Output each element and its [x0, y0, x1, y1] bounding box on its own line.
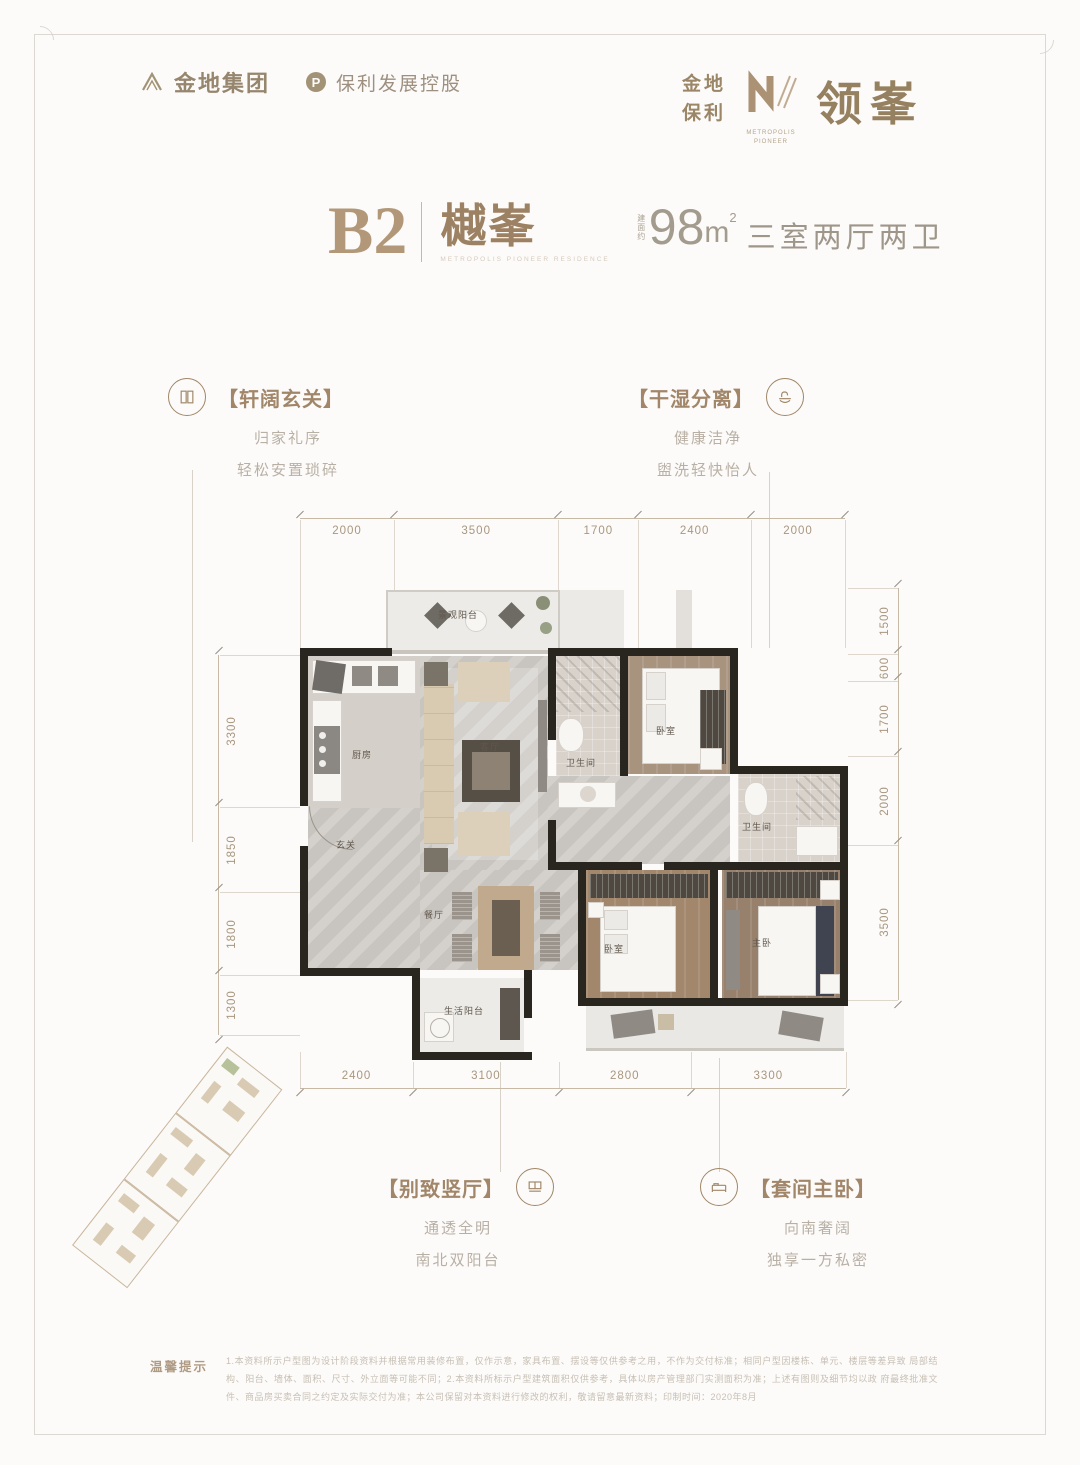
room-label-master: 主卧 — [752, 936, 772, 949]
room-label-bath1: 卫生间 — [566, 756, 596, 769]
dim-label: 2400 — [680, 525, 710, 537]
callout-master-line2: 独享一方私密 — [718, 1249, 918, 1270]
poly-logo-icon: P — [306, 72, 326, 92]
shower-area — [556, 656, 620, 712]
callout-hall-line1: 通透全明 — [378, 1217, 538, 1238]
wall — [300, 648, 308, 806]
storage-cabinet — [500, 988, 520, 1040]
washer-drum — [430, 1018, 450, 1038]
connector-entry — [192, 470, 193, 842]
room-label-dining: 餐厅 — [424, 908, 444, 921]
stove — [314, 726, 340, 774]
masthead-brand-stack: 金地 保利 — [682, 70, 726, 129]
nightstand — [820, 880, 840, 900]
range-hood — [312, 660, 346, 694]
callout-master-line1: 向南奢阔 — [718, 1217, 918, 1238]
wall — [710, 866, 718, 1006]
sofa — [424, 684, 454, 844]
callout-hall-line2: 南北双阳台 — [378, 1249, 538, 1270]
tv-console — [726, 910, 740, 990]
callout-master: 【套间主卧】 向南奢阔 独享一方私密 — [700, 1168, 950, 1270]
dim-label: 3500 — [461, 525, 491, 537]
dim-chain-top: 2000 3500 1700 2400 2000 — [300, 518, 845, 543]
callout-entry-title: 【轩阔玄关】 — [218, 383, 344, 412]
dim-label: 3500 — [879, 908, 891, 938]
window-sill — [392, 650, 556, 654]
dim-label: 1500 — [879, 606, 891, 636]
m-logo-word1: METROPOLIS — [740, 129, 802, 138]
burner — [319, 732, 326, 739]
callout-drywet-line1: 健康洁净 — [628, 427, 788, 448]
gemdale-logo-icon — [140, 70, 164, 94]
wall — [548, 862, 642, 870]
dim-label: 1850 — [226, 835, 238, 865]
flyer-page: 金地集团 P 保利发展控股 金地 保利 METROPOLIS PIONEER 领… — [0, 0, 1080, 1465]
lounge-chair — [458, 662, 510, 702]
m-logo-block: METROPOLIS PIONEER — [740, 66, 802, 147]
wardrobe — [590, 874, 708, 898]
wall — [664, 862, 848, 870]
masthead-baoli: 保利 — [682, 99, 726, 128]
wall — [730, 648, 738, 774]
room-label-bedroom-n: 卧室 — [656, 724, 676, 737]
room-label-bedroom-s: 卧室 — [604, 942, 624, 955]
dim-chain-right: 1500 600 1700 2000 3500 — [872, 588, 899, 1000]
wall — [556, 648, 738, 656]
basin — [580, 786, 596, 802]
dining-chair — [540, 892, 560, 920]
room-label-bath2: 卫生间 — [742, 820, 772, 833]
toilet — [558, 718, 584, 752]
disclaimer-line: 1.本资料所示户型图为设计阶段资料并根据常用装修布置，仅作示意，家具布置、摆设等… — [226, 1356, 906, 1366]
wall — [620, 648, 628, 776]
area-superscript: 2 — [729, 210, 736, 225]
unit-name: 樾峯 — [440, 204, 609, 250]
witness-line — [845, 520, 846, 648]
dim-label: 2000 — [783, 525, 813, 537]
burner — [319, 746, 326, 753]
dim-label: 2400 — [342, 1070, 372, 1082]
dim-label: 3300 — [754, 1070, 784, 1082]
dim-chain-left: 3300 1850 1800 1300 — [218, 655, 245, 1035]
unit-code: B2 — [328, 196, 407, 264]
bed-icon — [700, 1168, 738, 1206]
unit-name-subtext: METROPOLIS PIONEER RESIDENCE — [440, 256, 609, 263]
room-label-living: 客厅 — [480, 740, 500, 753]
wall — [300, 968, 418, 976]
wall — [412, 968, 420, 1060]
table-runner — [492, 900, 520, 956]
connector-drywet — [769, 472, 770, 648]
dim-label: 600 — [879, 657, 891, 679]
nightstand — [820, 974, 840, 994]
unit-title-block: B2 樾峯 METROPOLIS PIONEER RESIDENCE 建面约 9… — [328, 196, 945, 264]
wall — [548, 820, 556, 870]
callout-drywet: 【干湿分离】 健康洁净 盥洗轻快怡人 — [628, 378, 858, 480]
nightstand — [700, 748, 722, 770]
callout-hall-title: 【别致竖厅】 — [378, 1173, 504, 1202]
gemdale-brand-name: 金地集团 — [174, 66, 270, 98]
disclaimer-text: 1.本资料所示户型图为设计阶段资料并根据常用装修布置，仅作示意，家具布置、摆设等… — [226, 1352, 938, 1406]
poly-brand-name: 保利发展控股 — [336, 69, 462, 96]
witness-line — [220, 1035, 300, 1036]
room-count-text: 三室两厅两卫 — [747, 214, 945, 256]
wall — [578, 866, 586, 1006]
coffee-table-top — [472, 752, 510, 790]
dining-chair — [540, 934, 560, 962]
room-label-foyer: 玄关 — [336, 838, 356, 851]
armchair — [424, 662, 448, 686]
lounge-chair — [458, 812, 510, 856]
dim-chain-bottom: 2400 3100 2800 3300 — [300, 1064, 846, 1089]
callout-drywet-line2: 盥洗轻快怡人 — [628, 459, 788, 480]
door-icon — [168, 378, 206, 416]
dim-label: 2000 — [879, 786, 891, 816]
wall — [300, 648, 392, 656]
wall — [300, 846, 308, 976]
disclaimer-label: 温馨提示 — [150, 1356, 208, 1375]
wall — [524, 968, 532, 1018]
callout-entry-line1: 归家礼序 — [198, 427, 378, 448]
dining-chair — [452, 892, 472, 920]
witness-line — [848, 1000, 898, 1001]
witness-line — [846, 1052, 847, 1088]
title-divider — [421, 202, 422, 262]
faucet-icon — [766, 378, 804, 416]
callout-entry-line2: 轻松安置琐碎 — [198, 459, 378, 480]
dim-label: 1300 — [226, 990, 238, 1020]
vanity — [796, 826, 838, 856]
room-label-life-balcony: 生活阳台 — [444, 1004, 484, 1017]
wall — [730, 766, 848, 774]
tv-console — [538, 700, 547, 792]
dining-chair — [452, 934, 472, 962]
kitchen-sink — [352, 666, 372, 686]
dim-label: 3300 — [226, 716, 238, 746]
plant — [540, 622, 552, 634]
plant — [536, 596, 550, 610]
brand-lockup-left: 金地集团 P 保利发展控股 — [140, 66, 462, 98]
masthead-jindi: 金地 — [682, 70, 726, 99]
wall — [548, 648, 556, 740]
toilet — [744, 782, 768, 816]
room-label-north-balcony: 景观阳台 — [438, 608, 478, 621]
wall — [840, 766, 848, 1006]
bed — [758, 906, 816, 996]
armchair — [424, 848, 448, 872]
exterior-void — [558, 590, 624, 650]
dim-label: 2800 — [610, 1070, 640, 1082]
project-masthead: 金地 保利 METROPOLIS PIONEER 领峯 — [682, 62, 924, 147]
project-name: 领峯 — [816, 68, 924, 134]
callout-master-title: 【套间主卧】 — [750, 1173, 876, 1202]
dim-label: 1700 — [879, 704, 891, 734]
wall — [412, 1052, 532, 1060]
dim-label: 2000 — [332, 525, 362, 537]
nightstand — [588, 902, 604, 918]
kitchen-sink — [378, 666, 398, 686]
dim-label: 3100 — [471, 1070, 501, 1082]
m-logo-icon — [740, 66, 802, 124]
unit-name-block: 樾峯 METROPOLIS PIONEER RESIDENCE — [440, 196, 609, 263]
pillow — [646, 672, 666, 700]
shower-area — [796, 776, 840, 820]
callout-drywet-title: 【干湿分离】 — [628, 383, 754, 412]
dim-label: 1700 — [584, 525, 614, 537]
burner — [319, 760, 326, 767]
dim-label: 1800 — [226, 919, 238, 949]
area-prefix: 建面约 — [636, 214, 647, 241]
callout-hall: 【别致竖厅】 通透全明 南北双阳台 — [378, 1168, 608, 1270]
callout-entry: 【轩阔玄关】 归家礼序 轻松安置琐碎 — [168, 378, 398, 480]
hall-window-icon — [516, 1168, 554, 1206]
room-label-kitchen: 厨房 — [352, 748, 372, 761]
side-table — [658, 1014, 674, 1030]
area-unit: m — [704, 216, 729, 250]
area-value: 98 — [649, 202, 705, 252]
m-logo-word2: PIONEER — [740, 138, 802, 147]
pillow — [604, 910, 628, 930]
